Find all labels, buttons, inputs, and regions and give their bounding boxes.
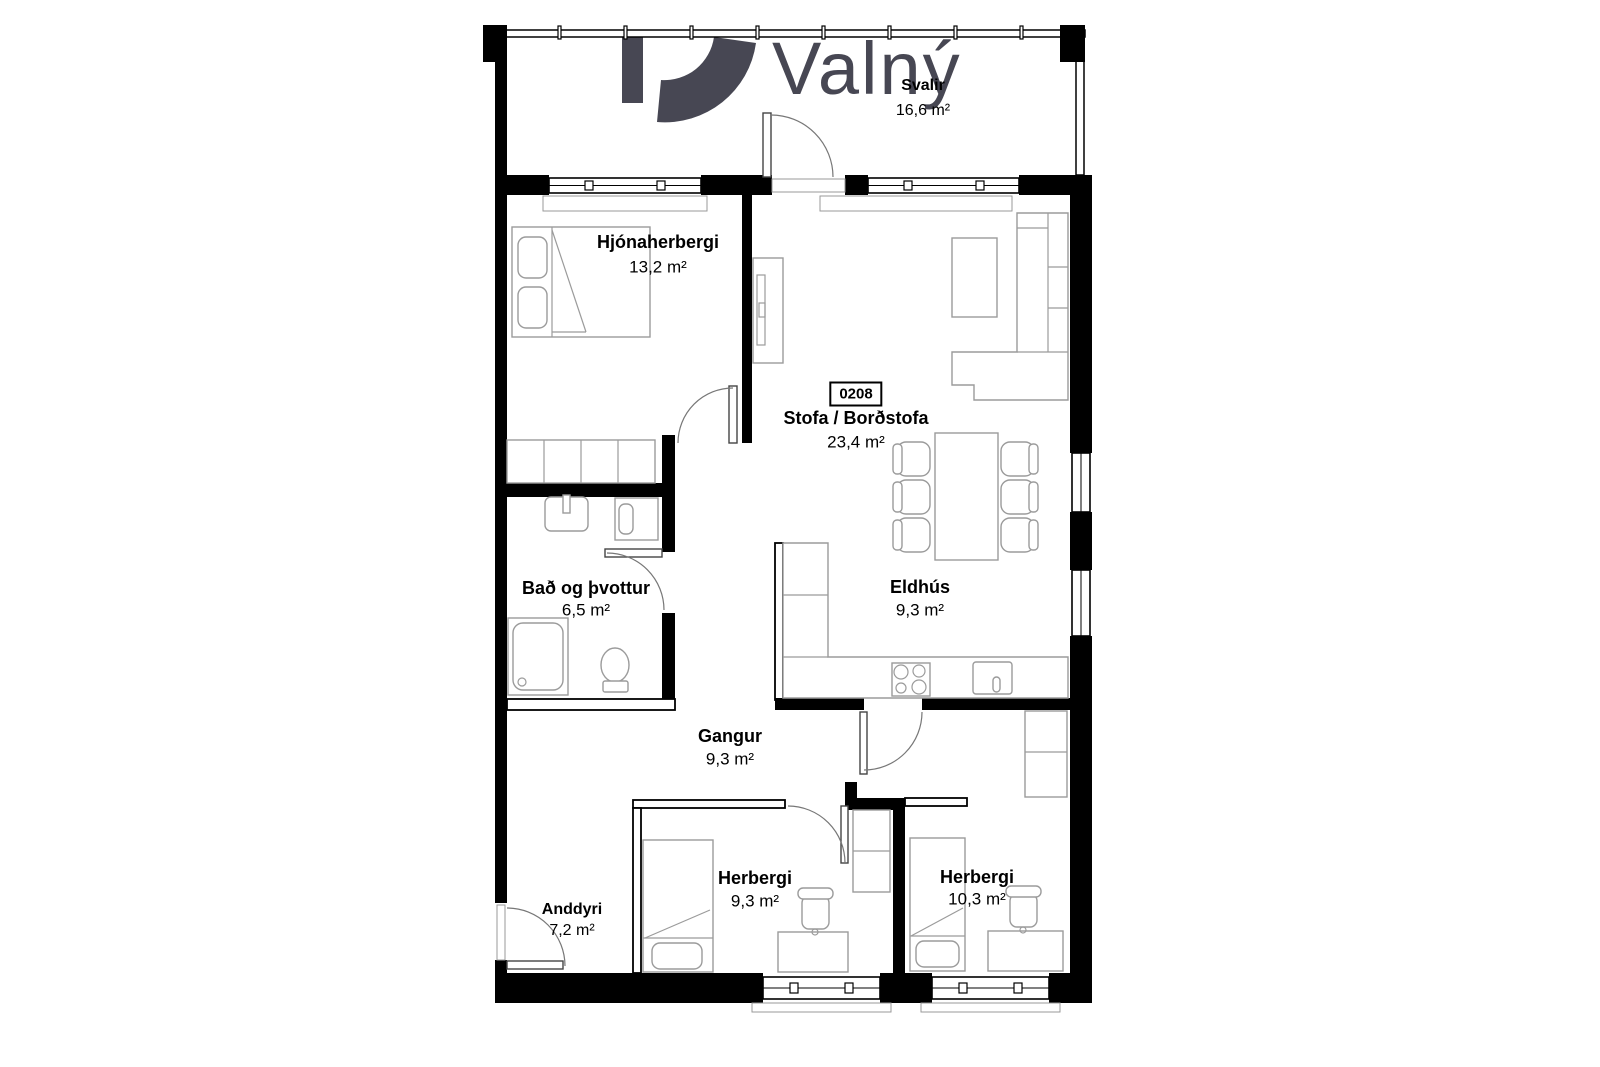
room-label-hjonaherbergi: Hjónaherbergi [597, 233, 719, 251]
dining-table [935, 433, 998, 560]
balcony-wall-left [495, 28, 507, 175]
window-bedroom-top [543, 178, 707, 211]
door-bedroom-1 [788, 806, 848, 863]
desk-1 [778, 932, 848, 972]
unit-number-badge: 0208 [829, 382, 882, 407]
desk-2 [988, 931, 1063, 971]
door-kitchen-hall [860, 712, 922, 774]
brand-wordmark: Valný [772, 26, 962, 111]
tv-unit [753, 258, 783, 363]
window-right-upper [1072, 453, 1090, 512]
room-area-bad: 6,5 m² [562, 602, 610, 619]
cooktop [892, 663, 930, 696]
window-bedroom2-bottom [921, 977, 1060, 1012]
wardrobe-master [507, 440, 655, 483]
room-area-eldhus: 9,3 m² [896, 602, 944, 619]
desk-chair-1 [798, 888, 833, 935]
room-area-gangur: 9,3 m² [706, 751, 754, 768]
kitchen-sink [973, 662, 1012, 694]
closet-bedroom-1 [853, 810, 890, 892]
window-right-lower [1072, 570, 1090, 636]
door-master-bedroom [678, 386, 737, 443]
room-area-anddyri: 7,2 m² [549, 923, 594, 939]
brand-logo-icon [622, 35, 756, 122]
room-area-herbergi-2: 10,3 m² [948, 891, 1006, 908]
room-label-herbergi-1: Herbergi [718, 869, 792, 887]
room-label-gangur: Gangur [698, 727, 762, 745]
single-bed-1 [643, 840, 713, 972]
shower [508, 618, 568, 695]
washing-machine [615, 498, 658, 540]
room-area-herbergi-1: 9,3 m² [731, 893, 779, 910]
toilet [601, 648, 629, 692]
door-balcony [763, 113, 845, 192]
room-label-herbergi-2: Herbergi [940, 868, 1014, 886]
balcony-wall-stub-right [1060, 25, 1085, 62]
room-label-stofa: Stofa / Borðstofa [783, 409, 928, 427]
tall-cabinet [1025, 711, 1067, 797]
bathroom-sink [545, 495, 588, 531]
room-label-anddyri: Anddyri [542, 902, 602, 918]
room-area-hjonaherbergi: 13,2 m² [629, 259, 687, 276]
room-label-svalir: Svalir [901, 78, 945, 94]
desk-chair-2 [1006, 886, 1041, 933]
floor-plan-drawing [0, 0, 1600, 1067]
room-area-svalir: 16,6 m² [896, 103, 950, 119]
floor-plan-page: Valný Svalir 16,6 m² Hjónaherbergi 13,2 … [0, 0, 1600, 1067]
room-area-stofa: 23,4 m² [827, 434, 885, 451]
room-label-eldhus: Eldhús [890, 578, 950, 596]
coffee-table [952, 238, 997, 317]
room-label-bad: Bað og þvottur [522, 579, 650, 597]
window-bedroom1-bottom [752, 977, 891, 1012]
